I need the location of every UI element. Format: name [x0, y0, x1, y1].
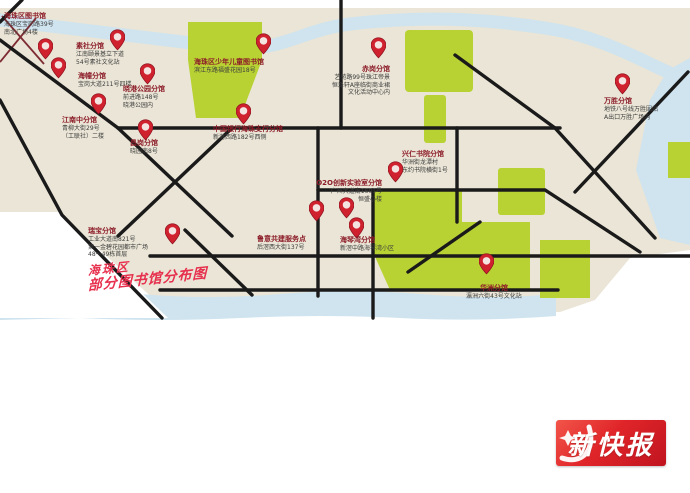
branch-address: 东约书院横街1号 [402, 167, 448, 175]
chigang-branch-label: 赤岗分馆艺苑路99号珠江帝景恒泽轩A座临街商业裙文化活动中心内 [318, 65, 390, 97]
huazhou-branch-label: 华洲分馆瀛洲六街43号文化站 [462, 284, 526, 301]
branch-address: 海珠区宝岗路39号 [4, 21, 54, 29]
changgang-branch-label: 昌岗分馆晓园南8号 [130, 139, 158, 156]
branch-name: 万胜分馆 [604, 97, 658, 106]
haizhu-district-library-label: 海珠区图书馆海珠区宝岗路39号南北广场4楼 [4, 12, 54, 36]
branch-name: 鲁意共建服务点 [257, 235, 306, 244]
branch-name: 兴仁书院分馆 [402, 150, 448, 159]
branch-name: 晓港公园分馆 [123, 85, 165, 94]
branch-address: 广州大道南1601号 [312, 188, 382, 196]
jiangnanzhong-branch-pin-icon [91, 93, 106, 115]
branch-address: 晓港公园内 [123, 102, 165, 110]
branch-name: 瑞宝分馆 [88, 227, 148, 236]
map: 海珠区图书馆海珠区宝岗路39号南北广场4楼素社分馆江南颐景基立下道54号素社文化… [0, 0, 690, 493]
ruibao-branch-label: 瑞宝分馆工业大道南821号第一金碧花园都市广场48～49栋首层 [88, 227, 148, 259]
haiqinwan-branch-label: 海琴湾分馆新滘中路海琴湾小区 [340, 236, 394, 253]
branch-address: 文化活动中心内 [318, 89, 390, 97]
branch-address: 第一金碧花园都市广场 [88, 244, 148, 252]
branch-address: 滨江东路福盛花园18号 [194, 67, 264, 75]
branch-address: 工业大道南821号 [88, 236, 148, 244]
jiangnanzhong-branch-label: 江南中分馆青柳大街29号（工联社）二楼 [62, 116, 104, 140]
branch-name: 海珠区图书馆 [4, 12, 54, 21]
branch-address: 南北广场4楼 [4, 29, 54, 37]
branch-name: 素社分馆 [76, 42, 124, 51]
branch-address: 恒泽轩A座临街商业裙 [318, 82, 390, 90]
branch-address: 54号素社文化站 [76, 59, 124, 67]
branch-address: （工联社）二楼 [62, 133, 104, 141]
branch-name: 华洲分馆 [462, 284, 526, 293]
branch-address: 地铁八号线万胜围站 [604, 106, 658, 114]
xiaogang-park-branch-pin-icon [140, 63, 155, 85]
boc-haizhu-branch-pin-icon [236, 103, 251, 125]
branch-address: 48～49栋首层 [88, 251, 148, 259]
branch-address: 前进路148号 [123, 94, 165, 102]
xingren-academy-branch-pin-icon [388, 161, 403, 183]
logo-text: 新快报 [556, 420, 666, 466]
branch-name: 赤岗分馆 [318, 65, 390, 74]
branch-name: 江南中分馆 [62, 116, 104, 125]
branch-address: 新滘中路海琴湾小区 [340, 245, 394, 253]
wansheng-branch-label: 万胜分馆地铁八号线万胜围站A出口万胜广场内 [604, 97, 658, 121]
children-library-pin-icon [256, 33, 271, 55]
branch-name: O2O创新实验室分馆 [312, 179, 382, 188]
branch-name: 海幢分馆 [78, 72, 131, 81]
branch-address: A出口万胜广场内 [604, 114, 658, 122]
children-library-label: 海珠区少年儿童图书馆滨江东路福盛花园18号 [194, 58, 264, 75]
branch-address: 华洲街龙潭村 [402, 159, 448, 167]
xiaogang-park-branch-label: 晓港公园分馆前进路148号晓港公园内 [123, 85, 165, 109]
boc-haizhu-branch-label: 中国银行海珠支行分馆新港西路182号西侧 [213, 125, 283, 142]
branch-address: 新港西路182号西侧 [213, 134, 283, 142]
branch-address: 恒盛小楼 [312, 196, 382, 204]
branch-address: 江南颐景基立下道 [76, 51, 124, 59]
huazhou-branch-pin-icon [479, 253, 494, 275]
branch-name: 昌岗分馆 [130, 139, 158, 148]
branch-name: 海琴湾分馆 [340, 236, 394, 245]
branch-address: 晓园南8号 [130, 148, 158, 156]
ruibao-branch-pin-icon [165, 223, 180, 245]
haichuang-branch-pin-icon [51, 57, 66, 79]
branch-address: 瀛洲六街43号文化站 [462, 293, 526, 301]
wansheng-branch-pin-icon [615, 73, 630, 95]
branch-address: 艺苑路99号珠江帝景 [318, 74, 390, 82]
xingren-academy-branch-label: 兴仁书院分馆华洲街龙潭村东约书院横街1号 [402, 150, 448, 174]
newspaper-logo: 新快报 [556, 420, 666, 466]
branch-address: 青柳大街29号 [62, 125, 104, 133]
branch-address: 后滘西大街137号 [257, 244, 306, 252]
branch-name: 中国银行海珠支行分馆 [213, 125, 283, 134]
changgang-branch-pin-icon [138, 119, 153, 141]
o2o-lab-branch-label: O2O创新实验室分馆广州大道南1601号恒盛小楼 [312, 179, 382, 203]
sushe-branch-label: 素社分馆江南颐景基立下道54号素社文化站 [76, 42, 124, 66]
luyi-service-point-label: 鲁意共建服务点后滘西大街137号 [257, 235, 306, 252]
chigang-branch-pin-icon [371, 37, 386, 59]
branch-name: 海珠区少年儿童图书馆 [194, 58, 264, 67]
